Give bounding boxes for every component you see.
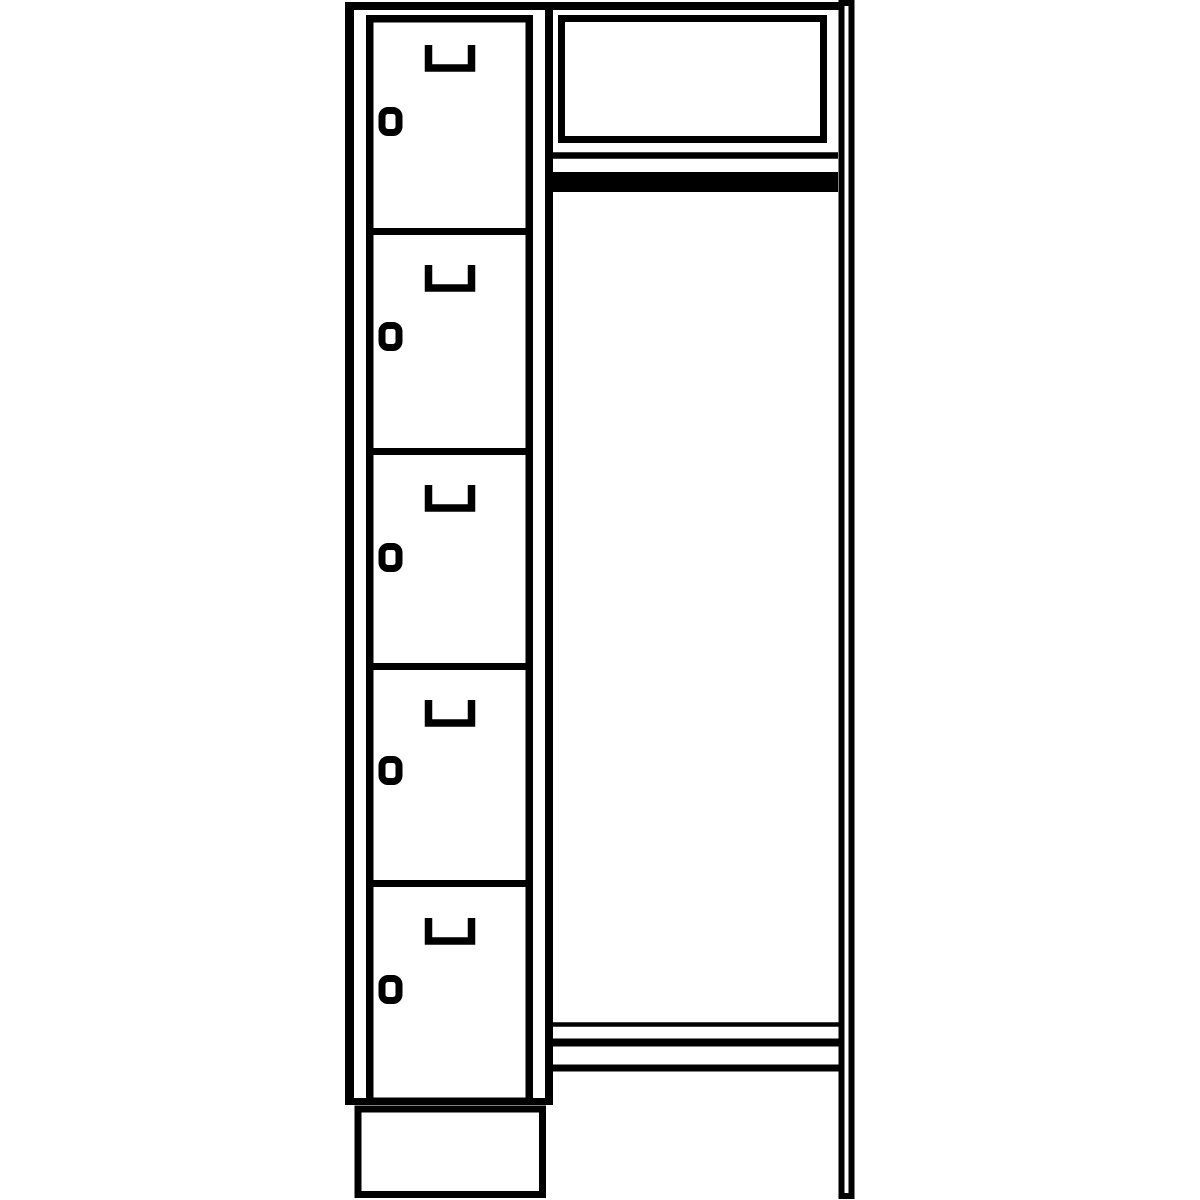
clothes-rail-bar (553, 172, 838, 192)
hat-shelf-box (562, 19, 824, 140)
side-frame-leg (842, 3, 852, 1196)
locker-diagram (0, 0, 1200, 1200)
plinth-base (358, 1109, 543, 1195)
diagram-canvas (0, 0, 1200, 1200)
